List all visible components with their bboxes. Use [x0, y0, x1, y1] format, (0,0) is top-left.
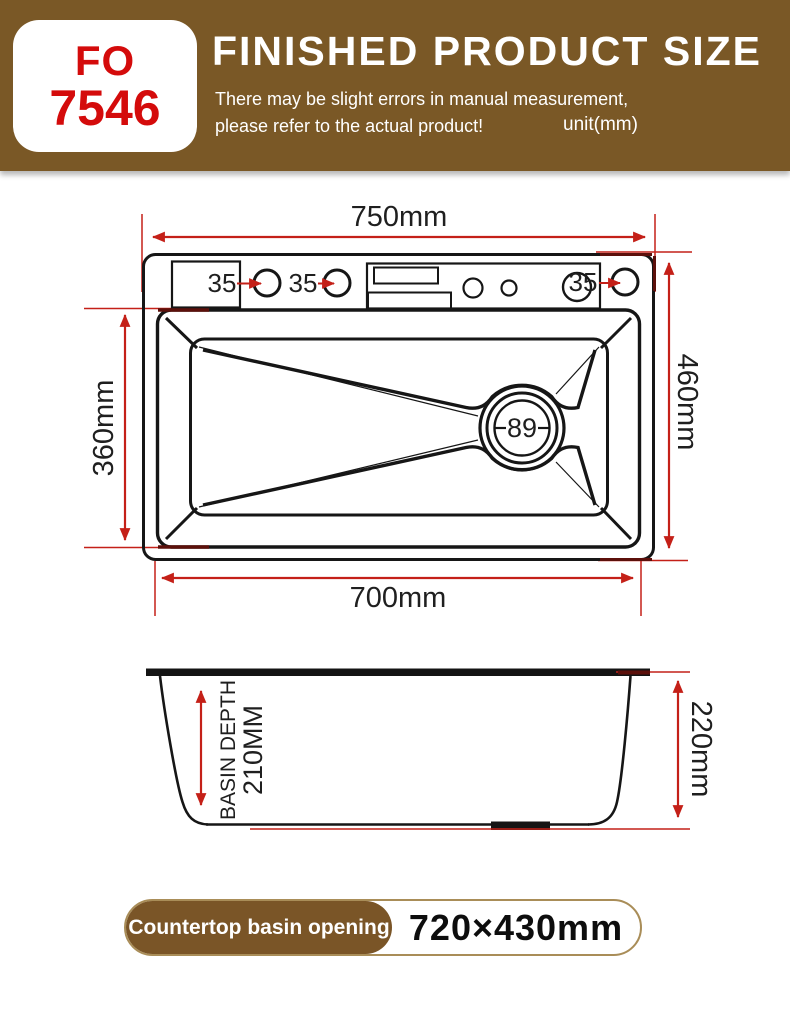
control-panel-display-bottom [368, 293, 451, 309]
panel-button-1 [464, 279, 483, 298]
dimension-basin-depth: 360mm [88, 380, 120, 477]
basin-depth-value: 210MM [238, 705, 268, 795]
sink-dimension-drawing: 89 35 35 35 [0, 0, 790, 1010]
side-right-wall [588, 676, 631, 825]
countertop-opening-label: Countertop basin opening [126, 901, 392, 954]
top-view: 89 35 35 35 [84, 201, 703, 616]
product-size-sheet: FO 7546 FINISHED PRODUCT SIZE There may … [0, 0, 790, 1010]
countertop-opening-badge: Countertop basin opening 720×430mm [124, 899, 642, 956]
basin-top-edge [158, 310, 640, 547]
control-panel [367, 264, 600, 309]
dimension-overall-width: 750mm [351, 201, 448, 233]
dimension-arrows-side-view [201, 681, 678, 817]
hole-label-3: 35 [569, 267, 598, 297]
side-view: 220mm BASIN DEPTH 210MM [146, 669, 717, 831]
countertop-opening-value: 720×430mm [392, 901, 640, 954]
hole-label-1: 35 [208, 268, 237, 298]
basin-depth-caption: BASIN DEPTH [217, 680, 240, 820]
drain: 89 [480, 386, 564, 470]
hole-label-2: 35 [289, 268, 318, 298]
dimension-overall-height: 220mm [685, 701, 717, 798]
panel-button-2 [502, 281, 517, 296]
dimension-overall-depth: 460mm [671, 354, 703, 451]
control-panel-display-top [374, 268, 438, 284]
basin-corner-chamfers [166, 318, 631, 539]
dimension-basin-width: 700mm [350, 582, 447, 614]
countertop-rim-bar [146, 669, 650, 677]
drain-diameter-label: 89 [507, 413, 537, 443]
